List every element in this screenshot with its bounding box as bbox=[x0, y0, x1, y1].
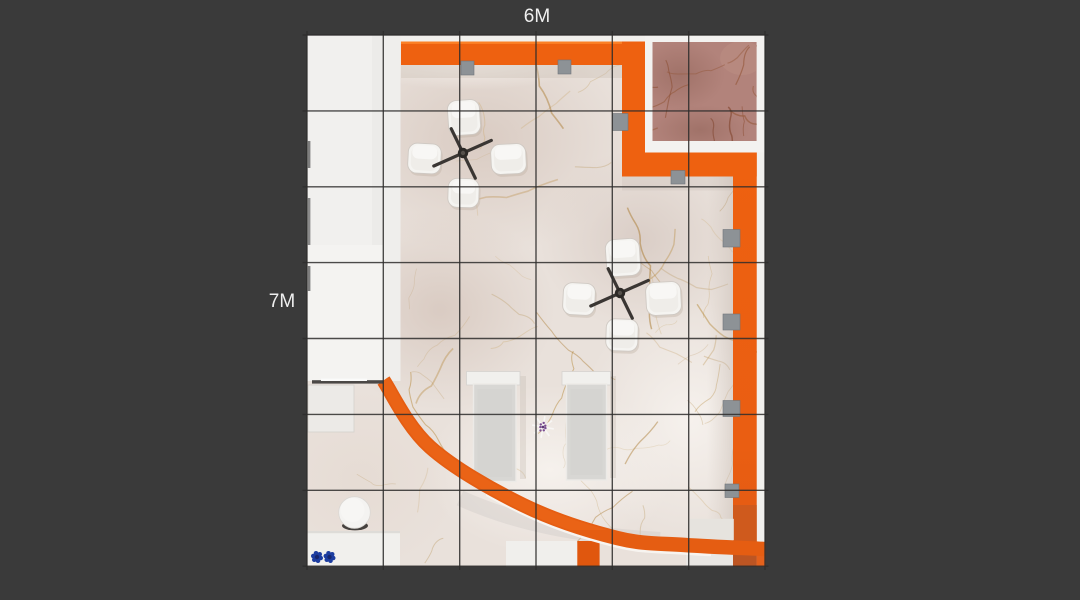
svg-text:6M: 6M bbox=[524, 6, 550, 27]
svg-text:7M: 7M bbox=[269, 291, 295, 312]
